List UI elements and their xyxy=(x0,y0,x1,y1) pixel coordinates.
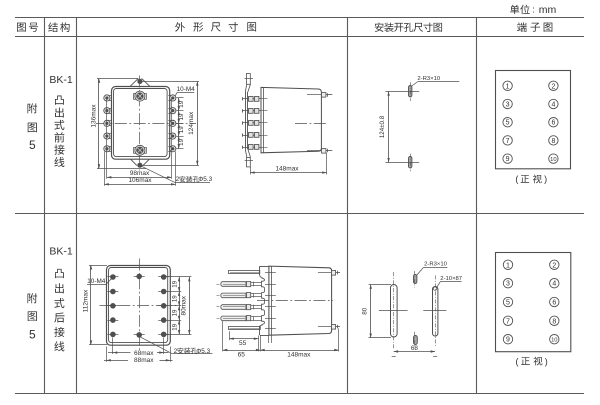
svg-text:1: 1 xyxy=(506,83,510,90)
svg-text:6: 6 xyxy=(551,120,555,127)
svg-text:10-M4: 10-M4 xyxy=(177,86,196,93)
svg-text:10: 10 xyxy=(551,338,557,344)
svg-text:2-R3×10: 2-R3×10 xyxy=(424,262,447,268)
svg-text:19: 19 xyxy=(178,138,185,145)
svg-text:7: 7 xyxy=(506,138,510,145)
svg-text:65: 65 xyxy=(238,352,246,359)
svg-text:2: 2 xyxy=(176,176,180,183)
svg-text:BK-1: BK-1 xyxy=(49,74,73,86)
svg-text:68: 68 xyxy=(411,345,419,352)
svg-text:4: 4 xyxy=(551,102,555,109)
svg-text:5: 5 xyxy=(29,138,36,152)
svg-text:): ) xyxy=(545,356,548,366)
svg-text:): ) xyxy=(544,174,547,184)
svg-text:(: ( xyxy=(516,356,519,366)
svg-text:106max: 106max xyxy=(128,177,152,184)
svg-text:4: 4 xyxy=(552,281,556,288)
svg-text:9: 9 xyxy=(506,156,510,163)
svg-text:124max: 124max xyxy=(188,111,195,135)
svg-text:BK-1: BK-1 xyxy=(49,246,73,258)
svg-text:8: 8 xyxy=(552,318,556,325)
svg-text:5: 5 xyxy=(29,327,36,341)
svg-text:2: 2 xyxy=(174,348,178,355)
svg-text:19: 19 xyxy=(171,295,178,302)
svg-text:19: 19 xyxy=(171,280,178,287)
svg-text:9: 9 xyxy=(506,337,510,344)
svg-text:5: 5 xyxy=(506,300,510,307)
svg-text:19: 19 xyxy=(178,100,185,107)
svg-text::: : xyxy=(532,4,535,15)
svg-text:2: 2 xyxy=(551,83,555,90)
svg-text:3: 3 xyxy=(506,102,510,109)
svg-text:80: 80 xyxy=(362,307,369,315)
svg-text:88max: 88max xyxy=(134,357,154,364)
svg-text:7: 7 xyxy=(506,318,510,325)
svg-text:10-M4: 10-M4 xyxy=(87,278,106,285)
svg-text:80max: 80max xyxy=(180,295,187,315)
svg-text:2-R3×10: 2-R3×10 xyxy=(417,76,440,82)
svg-text:1: 1 xyxy=(506,262,510,269)
svg-text:124±0.8: 124±0.8 xyxy=(379,115,386,138)
svg-text:10: 10 xyxy=(550,157,556,163)
svg-text:(: ( xyxy=(515,174,518,184)
svg-text:19: 19 xyxy=(178,126,185,133)
svg-text:2: 2 xyxy=(552,262,556,269)
svg-text:19: 19 xyxy=(171,309,178,316)
svg-text:148max: 148max xyxy=(287,352,311,359)
svg-text:55: 55 xyxy=(239,340,247,347)
svg-text:148max: 148max xyxy=(275,165,299,172)
svg-text:Φ5.3: Φ5.3 xyxy=(196,348,210,355)
svg-text:136max: 136max xyxy=(91,104,98,128)
svg-text:6: 6 xyxy=(552,300,556,307)
svg-text:2-10×87: 2-10×87 xyxy=(440,276,462,282)
svg-text:mm: mm xyxy=(539,4,557,16)
svg-text:19: 19 xyxy=(178,113,185,120)
svg-text:8: 8 xyxy=(551,138,555,145)
svg-text:98max: 98max xyxy=(130,170,150,177)
svg-text:68max: 68max xyxy=(134,350,154,357)
svg-text:112max: 112max xyxy=(83,289,90,312)
svg-text:3: 3 xyxy=(506,281,510,288)
svg-text:19: 19 xyxy=(171,323,178,330)
svg-text:Φ5.3: Φ5.3 xyxy=(198,176,212,183)
svg-text:5: 5 xyxy=(506,120,510,127)
